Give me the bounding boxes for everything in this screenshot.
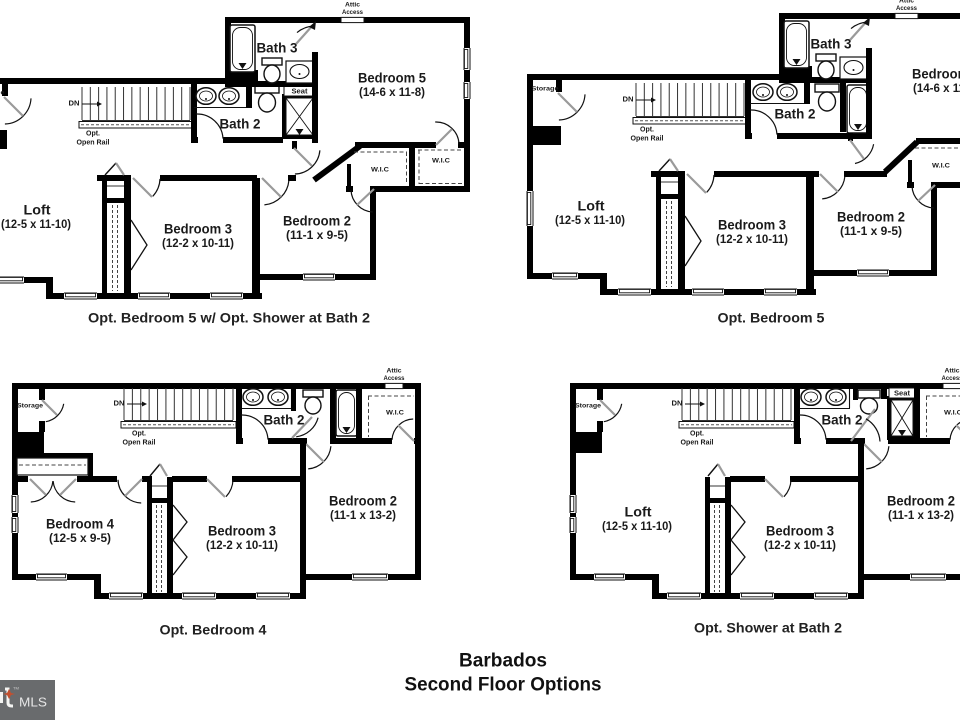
svg-text:Bedroom 2: Bedroom 2 [887, 494, 955, 509]
svg-text:(11-1 x 9-5): (11-1 x 9-5) [286, 228, 348, 242]
svg-text:Open Rail: Open Rail [631, 134, 664, 143]
svg-text:Attic: Attic [945, 368, 960, 375]
svg-text:(14-6 x 11-8): (14-6 x 11-8) [913, 81, 960, 95]
svg-text:Bath 2: Bath 2 [775, 107, 816, 122]
svg-text:Storage: Storage [0, 90, 5, 97]
svg-text:DN: DN [623, 97, 634, 104]
svg-text:(12-5 x 11-10): (12-5 x 11-10) [602, 519, 672, 533]
svg-text:Bedroom 3: Bedroom 3 [718, 218, 786, 233]
svg-text:(11-1 x 13-2): (11-1 x 13-2) [330, 508, 396, 522]
svg-text:Opt. Bedroom 5 w/ Opt. Shower: Opt. Bedroom 5 w/ Opt. Shower at Bath 2 [88, 311, 370, 326]
svg-text:Bath 2: Bath 2 [822, 413, 863, 428]
svg-text:(12-5 x 11-10): (12-5 x 11-10) [555, 213, 625, 227]
svg-text:Storage: Storage [532, 86, 559, 93]
svg-text:W.I.C: W.I.C [944, 410, 960, 417]
svg-text:Bath 3: Bath 3 [257, 41, 298, 56]
svg-text:Barbados: Barbados [459, 651, 547, 672]
svg-text:Second Floor Options: Second Floor Options [405, 675, 602, 696]
svg-text:Opt.: Opt. [690, 429, 704, 438]
svg-text:Bedroom 5: Bedroom 5 [358, 71, 426, 86]
svg-text:Bedroom 2: Bedroom 2 [837, 210, 905, 225]
svg-text:Opt. Bedroom 4: Opt. Bedroom 4 [160, 623, 268, 638]
svg-text:Opt.: Opt. [640, 125, 654, 134]
svg-text:W.I.C: W.I.C [932, 163, 950, 170]
svg-text:Bedroom 2: Bedroom 2 [329, 494, 397, 509]
svg-text:Open Rail: Open Rail [681, 438, 714, 447]
svg-text:Opt. Shower at Bath 2: Opt. Shower at Bath 2 [694, 621, 842, 636]
svg-text:Bedroom 2: Bedroom 2 [283, 214, 351, 229]
svg-text:W.I.C: W.I.C [432, 158, 450, 165]
svg-text:(12-2 x 10-11): (12-2 x 10-11) [716, 232, 788, 246]
svg-text:Bedroom 3: Bedroom 3 [164, 222, 232, 237]
svg-text:Attic: Attic [387, 368, 402, 375]
svg-text:W.I.C: W.I.C [371, 167, 389, 174]
svg-text:(12-2 x 10-11): (12-2 x 10-11) [206, 538, 278, 552]
svg-text:Storage: Storage [575, 403, 601, 410]
svg-text:Storage: Storage [17, 403, 43, 410]
svg-text:(12-2 x 10-11): (12-2 x 10-11) [764, 538, 836, 552]
svg-text:Seat: Seat [292, 87, 309, 96]
svg-text:Access: Access [342, 9, 363, 16]
svg-text:DN: DN [114, 401, 125, 408]
svg-text:(11-1 x 13-2): (11-1 x 13-2) [888, 508, 954, 522]
svg-text:(12-2 x 10-11): (12-2 x 10-11) [162, 236, 234, 250]
svg-text:DN: DN [672, 401, 683, 408]
svg-text:Loft: Loft [578, 199, 606, 214]
svg-text:Bath 2: Bath 2 [264, 413, 305, 428]
svg-text:Bedroom 3: Bedroom 3 [208, 524, 276, 539]
svg-text:Access: Access [384, 375, 405, 382]
svg-text:(12-5 x 9-5): (12-5 x 9-5) [49, 531, 111, 545]
svg-text:Access: Access [896, 5, 917, 12]
svg-text:Opt.: Opt. [132, 429, 146, 438]
svg-text:Bedroom 5: Bedroom 5 [912, 67, 960, 82]
svg-text:Open Rail: Open Rail [77, 138, 110, 147]
svg-text:Access: Access [942, 375, 960, 382]
svg-text:Seat: Seat [894, 389, 911, 398]
svg-text:Bedroom 3: Bedroom 3 [766, 524, 834, 539]
svg-text:W.I.C: W.I.C [386, 410, 404, 417]
svg-text:Loft: Loft [24, 203, 52, 218]
svg-text:Bath 2: Bath 2 [220, 117, 261, 132]
svg-text:DN: DN [69, 101, 80, 108]
svg-text:Bath 3: Bath 3 [811, 37, 852, 52]
svg-text:Attic: Attic [899, 0, 914, 5]
svg-text:TM: TM [13, 686, 19, 691]
svg-text:Attic: Attic [345, 2, 360, 9]
svg-text:Opt. Bedroom 5: Opt. Bedroom 5 [718, 311, 826, 326]
svg-text:(14-6 x 11-8): (14-6 x 11-8) [359, 85, 425, 99]
svg-text:Opt.: Opt. [86, 129, 100, 138]
svg-text:Bedroom 4: Bedroom 4 [46, 517, 114, 532]
svg-text:(12-5 x 11-10): (12-5 x 11-10) [1, 217, 71, 231]
svg-text:(11-1 x 9-5): (11-1 x 9-5) [840, 224, 902, 238]
svg-text:Open Rail: Open Rail [123, 438, 156, 447]
svg-text:Loft: Loft [625, 505, 653, 520]
svg-text:MLS: MLS [19, 695, 47, 710]
